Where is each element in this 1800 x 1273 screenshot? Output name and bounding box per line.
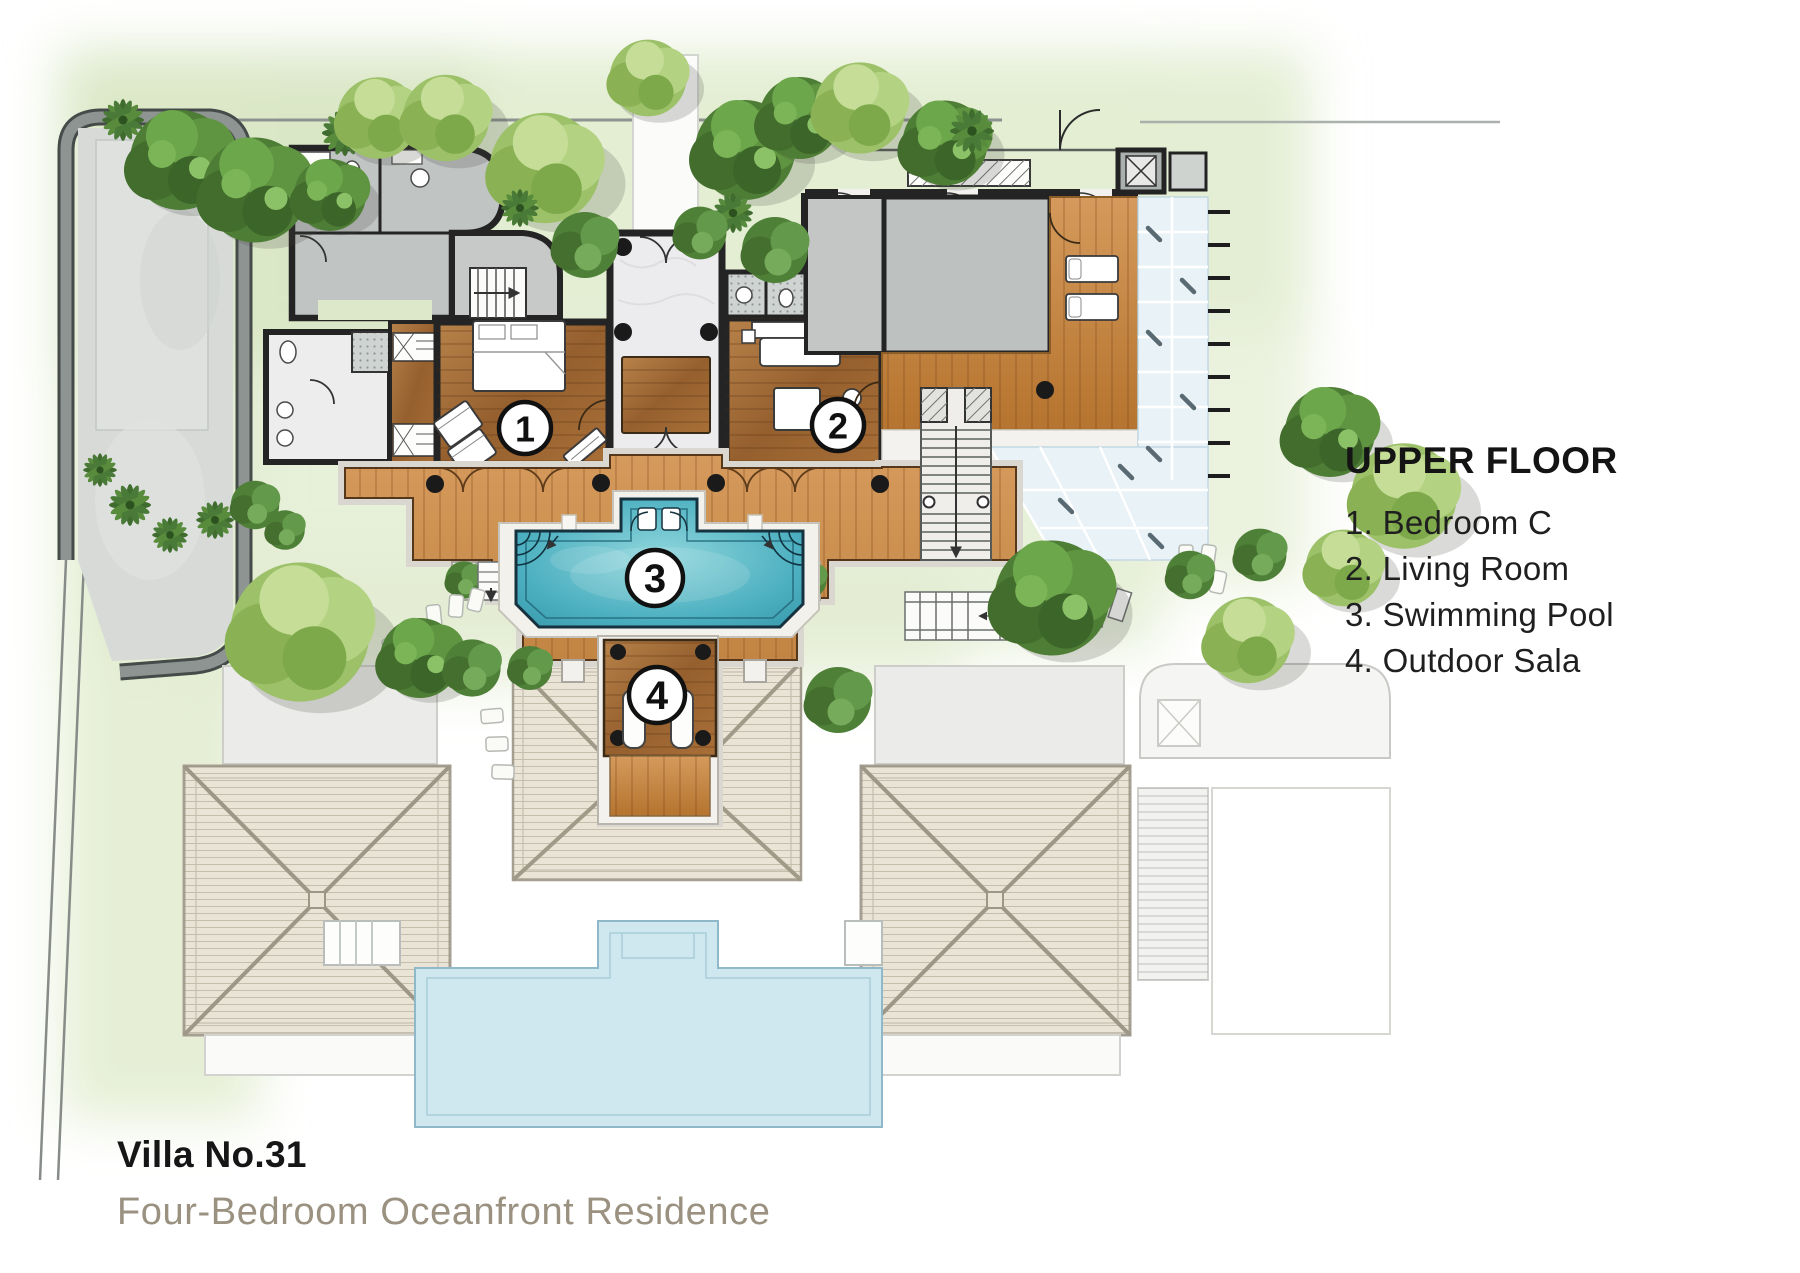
marker-2-number: 2 xyxy=(828,406,848,447)
legend-item-outdoor-sala: 4. Outdoor Sala xyxy=(1345,638,1618,684)
marker-3-number: 3 xyxy=(644,557,666,601)
marker-4-badge: 4 xyxy=(629,667,685,723)
legend-item-living-room: 2. Living Room xyxy=(1345,546,1618,592)
villa-subtitle: Four-Bedroom Oceanfront Residence xyxy=(117,1191,770,1234)
legend-title: UPPER FLOOR xyxy=(1345,440,1618,482)
marker-2-badge: 2 xyxy=(812,399,864,451)
legend-item-bedroom-c: 1. Bedroom C xyxy=(1345,500,1618,546)
marker-1-number: 1 xyxy=(515,409,535,450)
right-roof-ghost xyxy=(861,766,1130,1075)
floor-plan-page: 1 2 3 4 UPPER FLOOR 1. Bedroom C 2. Livi… xyxy=(0,0,1800,1273)
marker-3-badge: 3 xyxy=(627,550,683,606)
wardrobe-closets xyxy=(390,322,437,468)
legend-items: 1. Bedroom C 2. Living Room 3. Swimming … xyxy=(1345,500,1618,684)
legend-item-swimming-pool: 3. Swimming Pool xyxy=(1345,592,1618,638)
villa-name: Villa No.31 xyxy=(117,1134,770,1176)
title-block: Villa No.31 Four-Bedroom Oceanfront Resi… xyxy=(117,1134,770,1234)
planting-strip xyxy=(318,300,432,320)
upper-gray-room xyxy=(806,197,1050,353)
marker-4-number: 4 xyxy=(646,674,669,718)
entry-vestibule xyxy=(610,233,722,457)
outdoor-stairs xyxy=(921,388,991,560)
stair-block xyxy=(470,268,526,318)
master-bathroom xyxy=(266,332,390,462)
legend: UPPER FLOOR 1. Bedroom C 2. Living Room … xyxy=(1345,440,1618,684)
outdoor-sala xyxy=(598,636,718,824)
marker-1-badge: 1 xyxy=(499,402,551,454)
left-roof-ghost xyxy=(184,766,450,1075)
right-ghost-outlines xyxy=(1138,664,1390,1034)
